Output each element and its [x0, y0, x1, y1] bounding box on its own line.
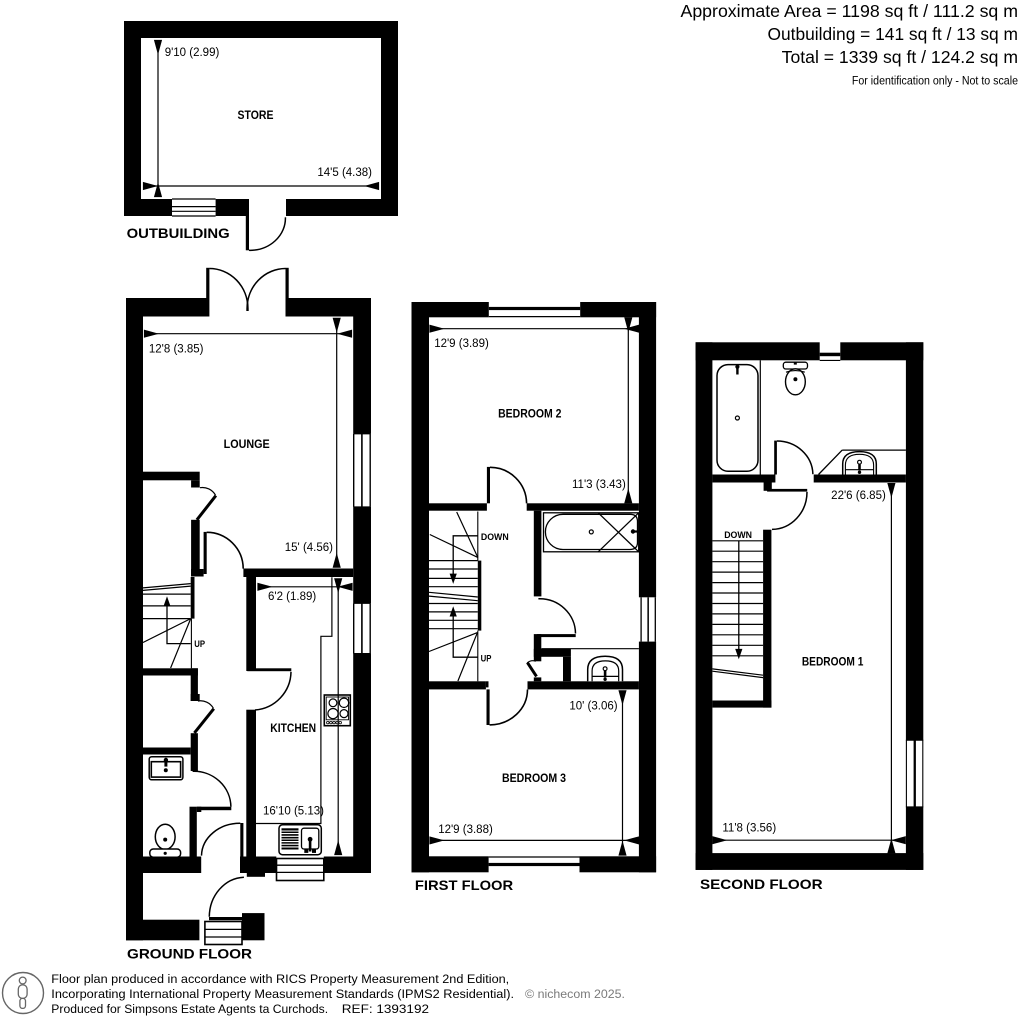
svg-text:SECOND FLOOR: SECOND FLOOR	[700, 877, 823, 892]
svg-text:10' (3.06): 10' (3.06)	[569, 700, 617, 712]
svg-text:11'3 (3.43): 11'3 (3.43)	[572, 479, 626, 491]
svg-text:BEDROOM 3: BEDROOM 3	[502, 773, 566, 785]
svg-text:Outbuilding = 141 sq ft / 13 s: Outbuilding = 141 sq ft / 13 sq m	[768, 24, 1019, 44]
svg-text:12'9 (3.88): 12'9 (3.88)	[438, 824, 493, 836]
svg-text:Floor plan produced in accorda: Floor plan produced in accordance with R…	[51, 972, 509, 986]
svg-text:OUTBUILDING: OUTBUILDING	[127, 226, 230, 241]
svg-text:DOWN: DOWN	[724, 530, 752, 541]
svg-text:STORE: STORE	[238, 110, 274, 122]
svg-text:© nichecom 2025.: © nichecom 2025.	[525, 987, 625, 1001]
svg-text:FIRST FLOOR: FIRST FLOOR	[415, 878, 513, 893]
svg-text:6'2 (1.89): 6'2 (1.89)	[268, 591, 316, 603]
svg-text:UP: UP	[194, 639, 205, 650]
svg-text:BEDROOM 1: BEDROOM 1	[802, 657, 864, 669]
svg-text:9'10 (2.99): 9'10 (2.99)	[165, 47, 220, 59]
svg-text:UP: UP	[481, 653, 492, 664]
svg-text:12'8 (3.85): 12'8 (3.85)	[149, 344, 204, 356]
svg-text:11'8 (3.56): 11'8 (3.56)	[722, 823, 776, 835]
svg-text:Total = 1339 sq ft / 124.2 sq: Total = 1339 sq ft / 124.2 sq m	[782, 47, 1018, 67]
svg-text:GROUND FLOOR: GROUND FLOOR	[127, 947, 252, 962]
svg-text:DOWN: DOWN	[481, 532, 509, 543]
svg-text:12'9 (3.89): 12'9 (3.89)	[434, 338, 489, 350]
svg-text:22'6 (6.85): 22'6 (6.85)	[831, 490, 886, 502]
svg-text:15' (4.56): 15' (4.56)	[285, 542, 333, 554]
svg-text:KITCHEN: KITCHEN	[270, 723, 316, 735]
svg-text:LOUNGE: LOUNGE	[224, 439, 270, 451]
svg-text:16'10 (5.13): 16'10 (5.13)	[263, 805, 324, 817]
svg-text:Produced for Simpsons Estate A: Produced for Simpsons Estate Agents ta C…	[51, 1002, 328, 1016]
svg-text:For identification only - Not: For identification only - Not to scale	[852, 74, 1018, 88]
svg-text:Incorporating International Pr: Incorporating International Property Mea…	[51, 987, 514, 1001]
svg-text:REF: 1393192: REF: 1393192	[342, 1002, 429, 1016]
svg-text:BEDROOM 2: BEDROOM 2	[498, 409, 561, 421]
svg-text:Approximate Area = 1198 sq ft: Approximate Area = 1198 sq ft / 111.2 sq…	[681, 1, 1019, 21]
svg-text:14'5 (4.38): 14'5 (4.38)	[317, 167, 372, 179]
